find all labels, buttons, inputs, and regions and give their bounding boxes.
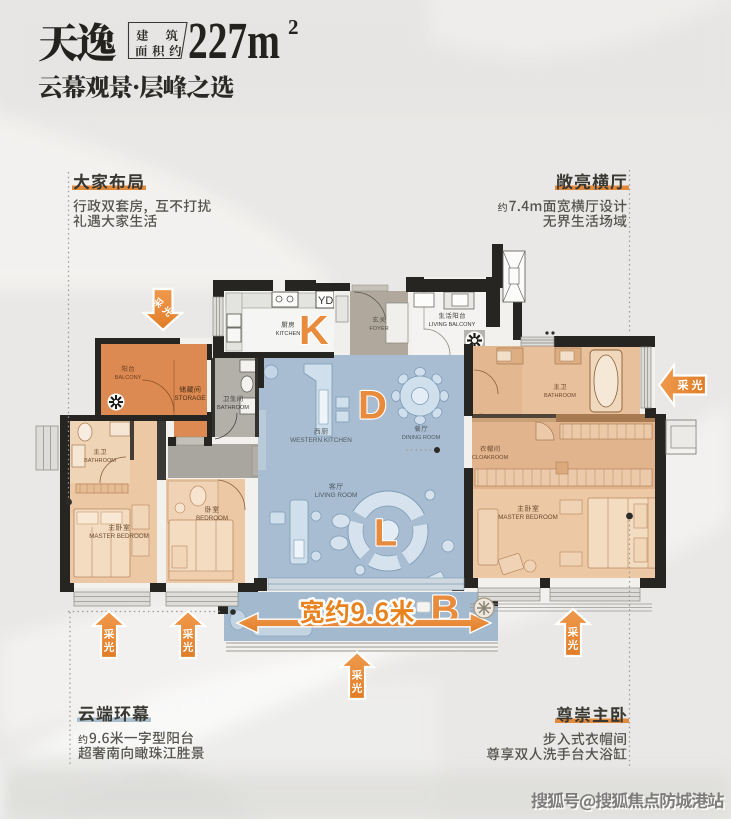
svg-text:2: 2 [288,15,299,39]
svg-text:FOYER: FOYER [369,326,388,332]
svg-text:BATHROOM: BATHROOM [217,405,249,411]
svg-text:BATHROOM: BATHROOM [84,458,116,464]
svg-text:BATHROOM: BATHROOM [544,393,576,399]
svg-text:BALCONY: BALCONY [115,375,142,381]
svg-text:DINING ROOM: DINING ROOM [402,435,441,441]
svg-text:D: D [358,384,387,428]
svg-text:YD: YD [318,295,333,307]
svg-text:KITCHEN: KITCHEN [276,331,301,337]
svg-text:STORAGE: STORAGE [174,395,205,402]
svg-text:LIVING BALCONY: LIVING BALCONY [429,322,476,328]
svg-text:BEDROOM: BEDROOM [196,515,228,522]
svg-text:CLOAKROOM: CLOAKROOM [472,455,509,461]
svg-text:WESTERN KITCHEN: WESTERN KITCHEN [290,437,352,444]
svg-text:MASTER BEDROOM: MASTER BEDROOM [498,514,557,521]
svg-text:LIVING ROOM: LIVING ROOM [315,492,358,499]
svg-text:227m: 227m [188,13,280,70]
svg-text:L: L [374,513,397,555]
svg-text:MASTER BEDROOM: MASTER BEDROOM [89,533,148,540]
svg-text:K: K [299,307,329,353]
